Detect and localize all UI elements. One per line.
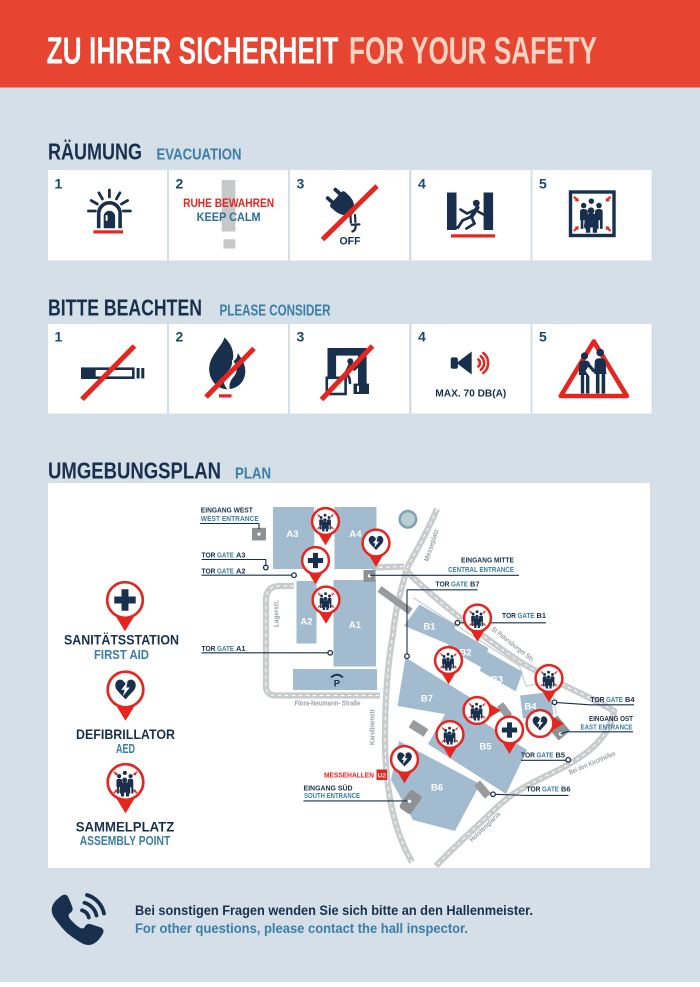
svg-text:Bei sonstigen Fragen wenden Si: Bei sonstigen Fragen wenden Sie sich bit… (135, 902, 533, 918)
svg-text:MESSEHALLEN: MESSEHALLEN (324, 771, 374, 780)
svg-text:CENTRAL ENTRANCE: CENTRAL ENTRANCE (448, 565, 514, 574)
svg-text:ZU IHRER SICHERHEIT: ZU IHRER SICHERHEIT (47, 31, 339, 73)
svg-text:DEFIBRILLATOR: DEFIBRILLATOR (76, 726, 175, 742)
svg-text:Karolinenstr: Karolinenstr (370, 709, 377, 745)
svg-text:EAST ENTRANCE: EAST ENTRANCE (581, 723, 633, 732)
svg-text:A4: A4 (349, 529, 362, 540)
svg-text:1: 1 (55, 328, 63, 344)
svg-text:GATE: GATE (217, 644, 234, 653)
svg-text:TOR: TOR (202, 566, 216, 575)
svg-text:B1: B1 (537, 611, 547, 620)
svg-text:P: P (334, 679, 341, 690)
svg-text:GATE: GATE (451, 580, 468, 589)
svg-text:B5: B5 (556, 750, 566, 759)
svg-text:PLEASE CONSIDER: PLEASE CONSIDER (220, 303, 331, 320)
svg-text:UMGEBUNGSPLAN: UMGEBUNGSPLAN (48, 458, 221, 484)
svg-text:5: 5 (539, 175, 547, 191)
svg-text:GATE: GATE (537, 750, 554, 759)
svg-text:SANITÄTSSTATION: SANITÄTSSTATION (64, 632, 179, 648)
svg-text:SAMMELPLATZ: SAMMELPLATZ (76, 819, 175, 835)
svg-text:4: 4 (418, 175, 426, 191)
svg-text:WEST ENTRANCE: WEST ENTRANCE (201, 514, 259, 523)
svg-text:TOR: TOR (591, 695, 605, 704)
svg-text:U2: U2 (378, 773, 387, 780)
svg-text:A1: A1 (236, 644, 246, 653)
svg-text:FIRST AID: FIRST AID (94, 648, 149, 662)
svg-text:OFF: OFF (340, 236, 361, 248)
svg-text:1: 1 (55, 175, 63, 191)
svg-text:2: 2 (176, 328, 184, 344)
svg-text:AED: AED (116, 742, 135, 756)
svg-text:A2: A2 (300, 617, 312, 628)
svg-text:GATE: GATE (606, 695, 623, 704)
svg-text:TOR: TOR (202, 551, 216, 560)
svg-text:GATE: GATE (542, 785, 559, 794)
svg-text:B6: B6 (431, 783, 443, 794)
svg-text:EVACUATION: EVACUATION (157, 147, 242, 164)
svg-text:GATE: GATE (518, 611, 535, 620)
svg-text:EINGANG MITTE: EINGANG MITTE (461, 556, 514, 565)
svg-text:2: 2 (176, 175, 184, 191)
svg-text:B1: B1 (423, 622, 436, 633)
svg-text:TOR: TOR (502, 611, 516, 620)
svg-text:For other questions, please co: For other questions, please contact the … (135, 921, 468, 936)
svg-text:ASSEMBLY POINT: ASSEMBLY POINT (80, 834, 171, 848)
svg-text:A3: A3 (236, 551, 246, 560)
svg-text:GATE: GATE (217, 566, 234, 575)
svg-text:A3: A3 (286, 529, 298, 540)
svg-text:MAX. 70 DB(A): MAX. 70 DB(A) (435, 387, 506, 399)
svg-text:B7: B7 (470, 580, 480, 589)
svg-text:A2: A2 (236, 566, 246, 575)
svg-text:RÄUMUNG: RÄUMUNG (48, 139, 142, 165)
svg-text:TOR: TOR (521, 750, 535, 759)
svg-text:RUHE BEWAHREN: RUHE BEWAHREN (183, 198, 274, 210)
svg-text:FOR YOUR SAFETY: FOR YOUR SAFETY (349, 31, 597, 73)
svg-text:GATE: GATE (217, 551, 234, 560)
svg-text:5: 5 (539, 328, 547, 344)
svg-text:B3: B3 (491, 675, 503, 686)
svg-text:TOR: TOR (436, 580, 450, 589)
svg-text:PLAN: PLAN (235, 466, 271, 483)
svg-text:B6: B6 (561, 785, 571, 794)
svg-text:A1: A1 (349, 620, 362, 631)
svg-text:B7: B7 (421, 694, 433, 705)
svg-text:BITTE BEACHTEN: BITTE BEACHTEN (48, 295, 202, 321)
svg-text:3: 3 (297, 328, 305, 344)
svg-text:TOR: TOR (527, 785, 541, 794)
svg-text:TOR: TOR (202, 644, 216, 653)
svg-text:3: 3 (297, 175, 305, 191)
svg-text:KEEP CALM: KEEP CALM (197, 212, 261, 224)
svg-text:B4: B4 (625, 695, 635, 704)
svg-text:Flora-Neumann- Straße: Flora-Neumann- Straße (295, 701, 361, 708)
svg-text:SOUTH ENTRANCE: SOUTH ENTRANCE (304, 791, 360, 800)
svg-text:Lagerstr.: Lagerstr. (274, 600, 281, 627)
svg-text:B5: B5 (479, 742, 492, 753)
svg-text:4: 4 (418, 328, 426, 344)
